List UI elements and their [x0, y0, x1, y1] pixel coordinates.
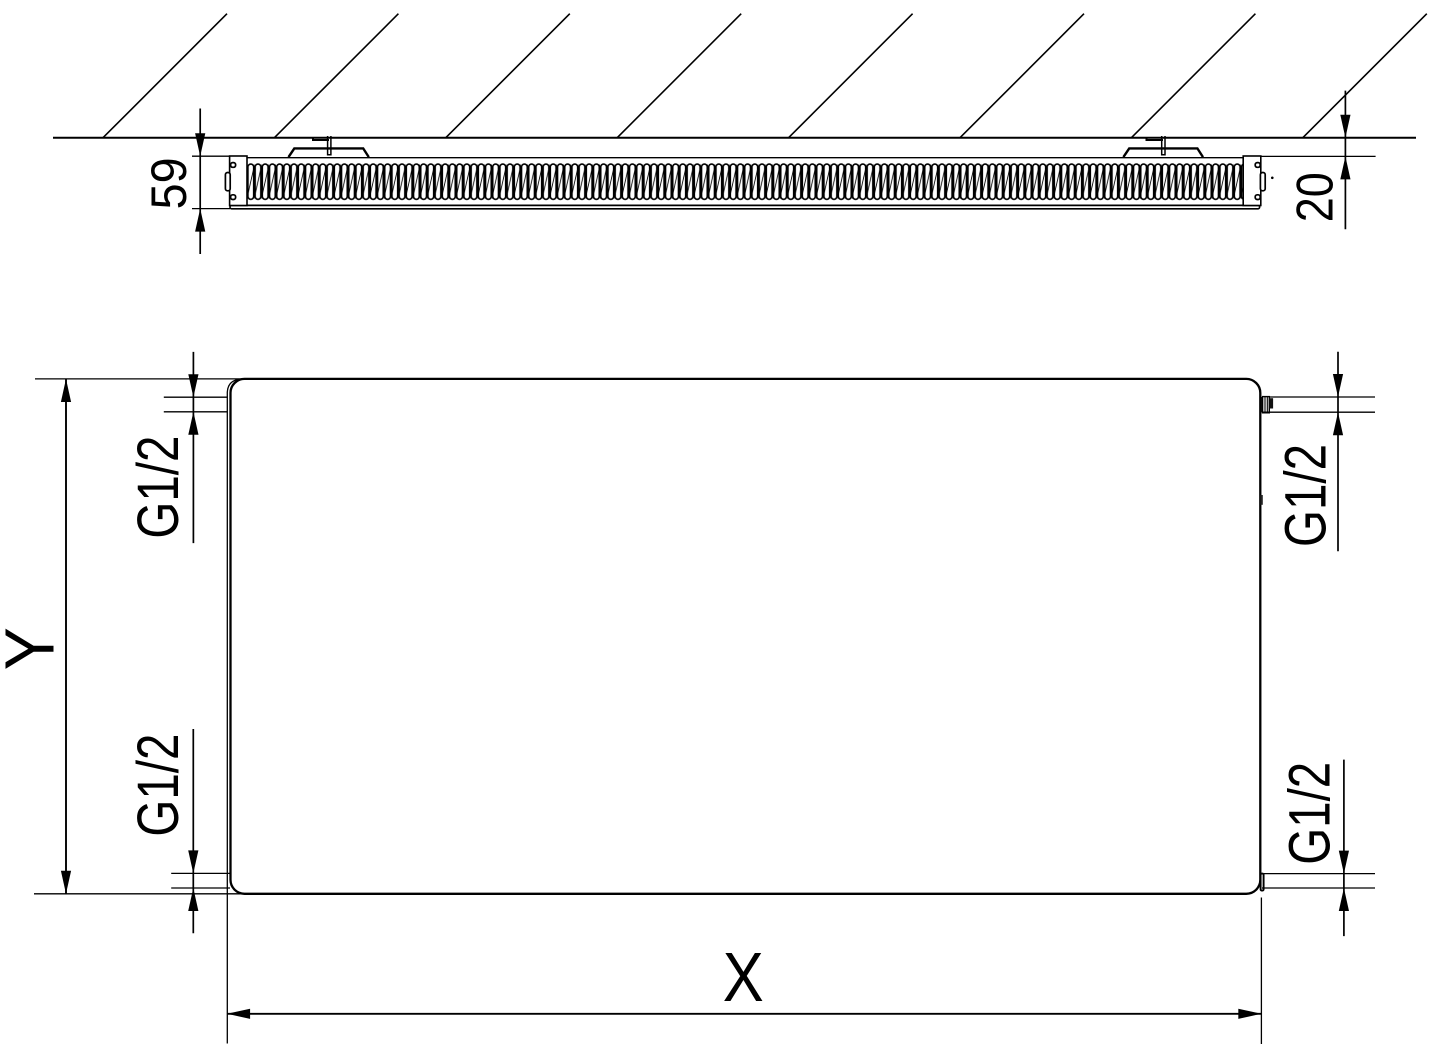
- svg-text:Y: Y: [0, 627, 68, 670]
- svg-text:59: 59: [140, 157, 197, 209]
- svg-text:X: X: [723, 938, 764, 1016]
- svg-text:20: 20: [1286, 172, 1344, 222]
- svg-text:G1/2: G1/2: [1274, 444, 1339, 547]
- svg-text:G1/2: G1/2: [1278, 762, 1343, 865]
- svg-text:G1/2: G1/2: [126, 436, 191, 539]
- svg-text:G1/2: G1/2: [126, 734, 191, 837]
